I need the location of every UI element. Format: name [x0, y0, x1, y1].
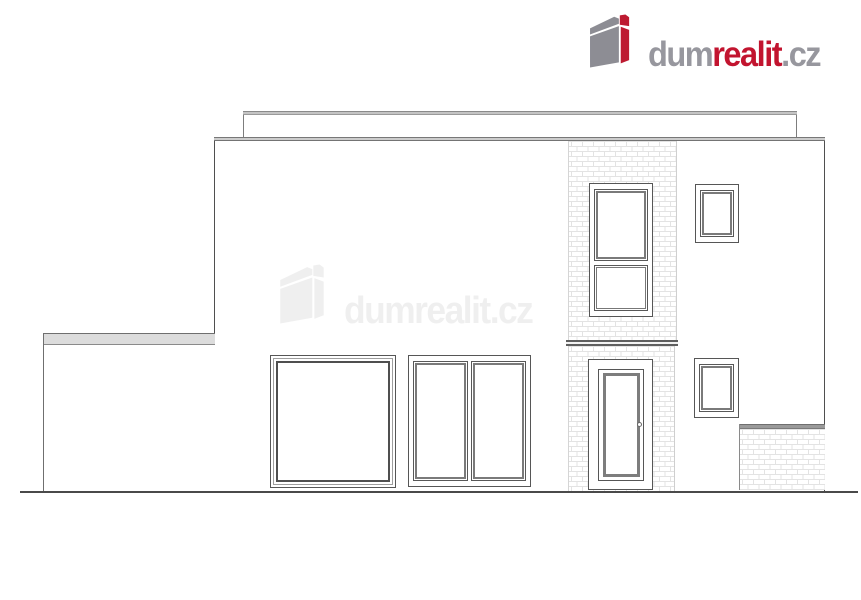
window-glass [415, 363, 466, 479]
brand-text-dum: dum [648, 35, 712, 74]
upper-tall-window-top-sash [594, 189, 648, 261]
watermark-text-cz: .cz [490, 290, 533, 332]
watermark-text-dum: dum [344, 290, 414, 332]
double-window-left-sash [413, 361, 468, 481]
roof-slab-edge [243, 111, 797, 115]
window-glass [701, 366, 732, 410]
door-handle [637, 422, 642, 427]
large-ground-window [270, 355, 396, 488]
window-glass [473, 363, 524, 479]
door-glazing [603, 373, 640, 477]
ground-line [20, 491, 858, 493]
window-glass [702, 192, 732, 235]
right-wall-brick-face [740, 429, 825, 490]
upper-small-window-sash [700, 190, 734, 237]
left-boundary-wall [43, 333, 215, 492]
double-window-right-sash [471, 361, 526, 481]
brand-text-realit: realit [712, 35, 781, 74]
lower-small-window-sash [699, 364, 734, 412]
window-glass [276, 361, 390, 482]
watermark-text-realit: realit [414, 290, 490, 332]
upper-tall-window [589, 183, 653, 317]
building-icon [588, 14, 633, 68]
upper-small-window [695, 184, 739, 243]
attic-parapet [243, 111, 797, 140]
upper-tall-window-bottom-sash [594, 265, 648, 311]
door-leaf [598, 369, 644, 481]
lower-small-window [694, 358, 739, 418]
watermark-logo: dumrealit.cz [278, 264, 547, 324]
facade-top-slab-band [214, 137, 825, 141]
building-icon [278, 264, 328, 324]
brand-logo: dumrealit.cz [588, 14, 833, 68]
brand-text-cz: .cz [781, 35, 820, 74]
window-frame-mid [273, 358, 393, 485]
watermark-text: dumrealit.cz [344, 292, 532, 330]
window-frame-outer [270, 355, 396, 488]
entrance-door [588, 359, 653, 490]
window-glass [596, 267, 646, 309]
listing-image-canvas: dumrealit.cz [0, 0, 861, 600]
window-glass [596, 191, 646, 259]
double-ground-window [408, 355, 531, 487]
right-brick-wall [739, 424, 825, 490]
brand-logo-text: dumrealit.cz [648, 37, 820, 72]
left-wall-coping [44, 334, 215, 345]
